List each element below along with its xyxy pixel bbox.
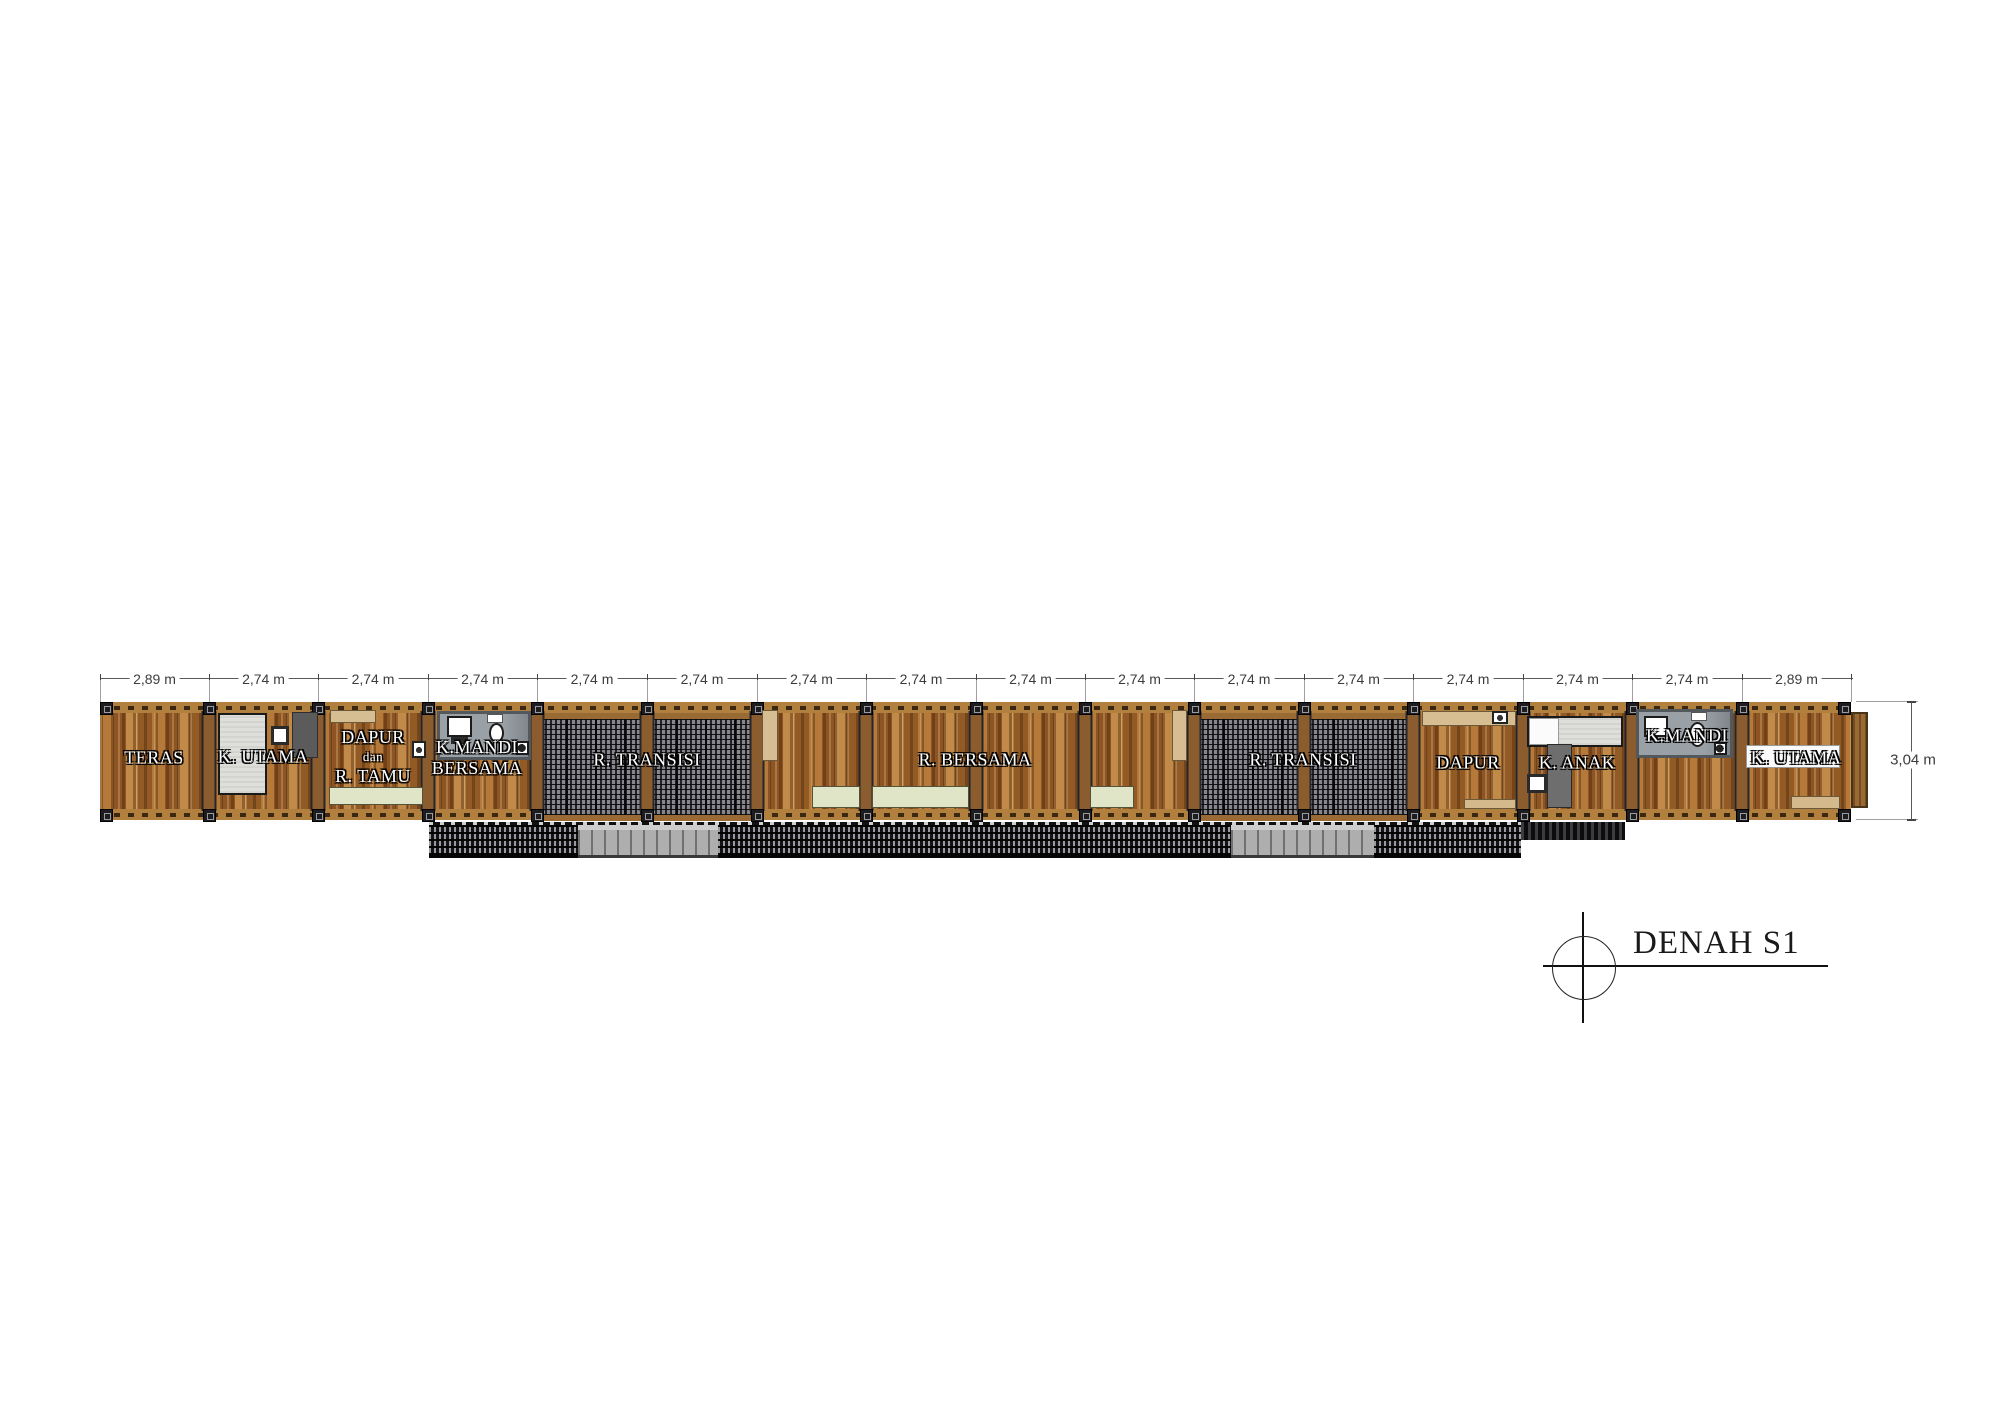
dimension-label: 2,74 m (677, 671, 728, 687)
extension-line (1304, 680, 1305, 702)
dimension-label: 2,74 m (1114, 671, 1165, 687)
room-label-dapur-r-tamu: DAPURdanR. TAMU (335, 727, 411, 787)
plan-title: DENAH S1 (1633, 925, 1800, 962)
deck-section (1521, 822, 1625, 840)
corner-casting (860, 809, 873, 822)
module-divider (1187, 711, 1202, 811)
corner-casting (531, 809, 544, 822)
corner-casting (1079, 702, 1092, 715)
corner-casting (1626, 809, 1639, 822)
corner-casting (1079, 809, 1092, 822)
dimension-tick (1907, 701, 1916, 703)
corner-casting (422, 702, 435, 715)
room-label-r-transisi-right: R. TRANSISI (1249, 750, 1356, 771)
room-label-line: K. ANAK (1539, 753, 1616, 774)
corner-casting (751, 809, 764, 822)
room-label-k-utama-right: K. UTAMA (1751, 748, 1842, 769)
corner-casting (641, 809, 654, 822)
door-leaf (1851, 712, 1868, 808)
sink (447, 716, 472, 737)
bed (1746, 714, 1840, 745)
extension-line (976, 680, 977, 702)
dimension-label: 2,74 m (1662, 671, 1713, 687)
corner-casting (1517, 702, 1530, 715)
corner-casting (1298, 809, 1311, 822)
extension-line (428, 680, 429, 702)
side-dimension-label: 3,04 m (1886, 752, 1940, 769)
toilet-tank (487, 714, 503, 723)
rug (812, 786, 860, 808)
dimension-label: 2,89 m (1771, 671, 1822, 687)
room-label-r-bersama: R. BERSAMA (918, 750, 1031, 771)
room-label-line: R. TRANSISI (593, 750, 700, 771)
corner-casting (531, 702, 544, 715)
room-label-line: K.MANDI (432, 737, 523, 758)
dimension-label: 2,89 m (129, 671, 180, 687)
window (1527, 774, 1547, 793)
room-label-k-mandi-bersama: K.MANDIBERSAMA (432, 737, 523, 779)
deck-section (1374, 822, 1521, 858)
extension-line (318, 680, 319, 702)
corner-casting (1838, 809, 1851, 822)
dimension-label: 2,74 m (786, 671, 837, 687)
side-table (762, 710, 778, 761)
corner-casting (1407, 702, 1420, 715)
module-divider (202, 711, 217, 811)
dimension-label: 2,74 m (896, 671, 947, 687)
extension-line (866, 680, 867, 702)
corner-casting (1736, 809, 1749, 822)
extension-line (1523, 680, 1524, 702)
rug (329, 787, 423, 805)
corner-casting (1298, 702, 1311, 715)
corner-casting (100, 809, 113, 822)
room-label-k-utama-left: K. UTAMA (218, 747, 309, 768)
dimension-tick (1907, 819, 1916, 821)
dimension-label: 2,74 m (567, 671, 618, 687)
extension-line (647, 680, 648, 702)
room-label-line: TERAS (124, 748, 184, 769)
room-label-line: K. UTAMA (218, 747, 309, 768)
corner-casting (100, 702, 113, 715)
module-divider (530, 711, 545, 811)
rug (1090, 786, 1134, 808)
kitchen-sink (1492, 711, 1508, 724)
extension-line (757, 680, 758, 702)
dimension-label: 2,74 m (1443, 671, 1494, 687)
deck-edge-dashes (429, 822, 1521, 825)
deck-section (578, 822, 718, 858)
room-label-line: R. TRANSISI (1249, 750, 1356, 771)
section-marker-circle (1552, 936, 1616, 1000)
dimension-label: 2,74 m (1552, 671, 1603, 687)
room-label-line: BERSAMA (432, 758, 523, 779)
extension-line (1851, 680, 1852, 702)
deck-section (1231, 822, 1374, 858)
toilet-tank (1691, 712, 1707, 721)
room-label-k-mandi-right: K.MANDI (1646, 726, 1728, 747)
extension-line (1413, 680, 1414, 702)
room-label-line: dan (335, 748, 411, 766)
extension-line (1085, 680, 1086, 702)
room-label-teras: TERAS (124, 748, 184, 769)
room-label-line: K. UTAMA (1751, 748, 1842, 769)
room-label-r-transisi-left: R. TRANSISI (593, 750, 700, 771)
room-label-line: K.MANDI (1646, 726, 1728, 747)
corner-casting (203, 702, 216, 715)
rug (1464, 799, 1516, 809)
room-label-line: R. TAMU (335, 766, 411, 787)
dimension-label: 2,74 m (1333, 671, 1384, 687)
corner-casting (1407, 809, 1420, 822)
side-table (1172, 710, 1187, 761)
extension-line (1194, 680, 1195, 702)
extension-line (209, 680, 210, 702)
extension-line (1742, 680, 1743, 702)
extension-line (537, 680, 538, 702)
corner-casting (1188, 702, 1201, 715)
corner-casting (422, 809, 435, 822)
floor-plan-canvas: 2,89 m2,74 m2,74 m2,74 m2,74 m2,74 m2,74… (0, 0, 2000, 1414)
corner-casting (1517, 809, 1530, 822)
corner-casting (970, 702, 983, 715)
deck-section (718, 822, 1231, 858)
wall-sink (412, 741, 426, 758)
corner-casting (203, 809, 216, 822)
corner-casting (860, 702, 873, 715)
pillow (1529, 718, 1559, 745)
dimension-label: 2,74 m (1224, 671, 1275, 687)
corner-casting (970, 809, 983, 822)
extension-line (100, 680, 101, 702)
corner-casting (641, 702, 654, 715)
window (271, 726, 289, 745)
room-label-line: R. BERSAMA (918, 750, 1031, 771)
room-label-line: DAPUR (1436, 753, 1500, 774)
dimension-label: 2,74 m (1005, 671, 1056, 687)
dimension-label: 2,74 m (238, 671, 289, 687)
room-label-dapur-right: DAPUR (1436, 753, 1500, 774)
room-label-k-anak: K. ANAK (1539, 753, 1616, 774)
room-label-line: DAPUR (335, 727, 411, 748)
deck-section (429, 822, 578, 858)
kitchen-counter (330, 710, 376, 723)
dimension-label: 2,74 m (457, 671, 508, 687)
rug (872, 786, 969, 808)
rug (1791, 796, 1840, 809)
corner-casting (312, 809, 325, 822)
module-divider (1406, 711, 1421, 811)
corner-casting (1188, 809, 1201, 822)
dimension-label: 2,74 m (348, 671, 399, 687)
extension-line (1632, 680, 1633, 702)
